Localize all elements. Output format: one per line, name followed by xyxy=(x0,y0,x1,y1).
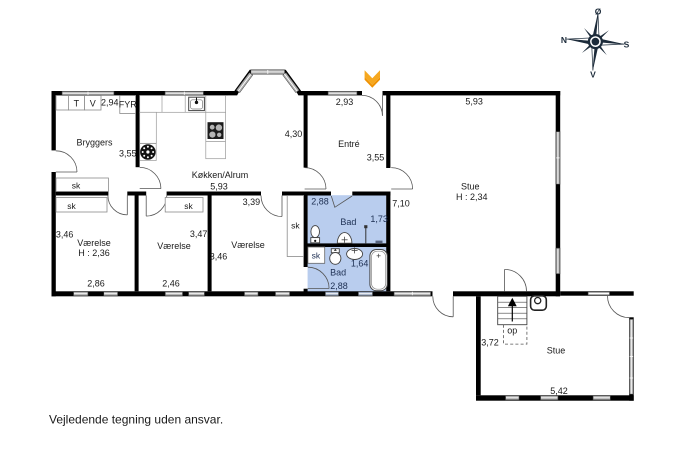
svg-text:3,47: 3,47 xyxy=(190,229,208,239)
svg-text:5,42: 5,42 xyxy=(550,386,568,396)
svg-text:sk: sk xyxy=(291,221,300,231)
svg-text:sk: sk xyxy=(67,201,76,211)
svg-text:Værelse: Værelse xyxy=(157,241,191,251)
svg-text:3,46: 3,46 xyxy=(56,229,74,239)
svg-text:Værelse: Værelse xyxy=(231,240,265,250)
svg-text:S: S xyxy=(624,40,630,50)
svg-text:3,39: 3,39 xyxy=(243,197,261,207)
svg-text:FYR: FYR xyxy=(119,99,138,109)
svg-text:4,30: 4,30 xyxy=(285,129,303,139)
svg-text:7,10: 7,10 xyxy=(392,199,410,209)
svg-text:3,72: 3,72 xyxy=(481,338,499,348)
svg-text:2,88: 2,88 xyxy=(311,196,329,206)
svg-text:Stue: Stue xyxy=(461,181,480,191)
svg-text:5,93: 5,93 xyxy=(210,182,228,192)
svg-text:sk: sk xyxy=(72,181,81,191)
svg-text:5,93: 5,93 xyxy=(465,97,483,107)
svg-text:2,46: 2,46 xyxy=(162,279,180,289)
svg-text:1,64: 1,64 xyxy=(351,258,369,268)
svg-text:3,55: 3,55 xyxy=(119,148,137,158)
svg-text:H : 2,34: H : 2,34 xyxy=(456,192,488,202)
svg-text:Bryggers: Bryggers xyxy=(76,137,113,147)
svg-text:Værelse: Værelse xyxy=(77,238,111,248)
svg-text:1,73: 1,73 xyxy=(370,214,388,224)
svg-text:V: V xyxy=(590,70,596,80)
svg-text:2,86: 2,86 xyxy=(87,279,105,289)
svg-text:Vejledende tegning uden ansvar: Vejledende tegning uden ansvar. xyxy=(49,413,223,427)
svg-text:2,88: 2,88 xyxy=(330,281,348,291)
svg-text:Ø: Ø xyxy=(595,7,602,17)
svg-text:Bad: Bad xyxy=(340,217,356,227)
svg-text:3,46: 3,46 xyxy=(210,252,228,262)
svg-text:Køkken/Alrum: Køkken/Alrum xyxy=(192,170,249,180)
svg-text:Bad: Bad xyxy=(330,268,346,278)
svg-text:H : 2,36: H : 2,36 xyxy=(78,248,110,258)
svg-text:Stue: Stue xyxy=(547,345,566,355)
svg-text:2,93: 2,93 xyxy=(336,97,354,107)
svg-text:3,55: 3,55 xyxy=(367,153,385,163)
svg-text:sk: sk xyxy=(184,201,193,211)
svg-text:sk: sk xyxy=(312,251,321,261)
svg-text:op: op xyxy=(507,326,517,336)
svg-text:T: T xyxy=(74,99,80,109)
svg-text:Entré: Entré xyxy=(338,139,360,149)
svg-text:2,94: 2,94 xyxy=(101,98,119,108)
svg-text:V: V xyxy=(90,99,96,109)
svg-text:N: N xyxy=(561,35,567,45)
